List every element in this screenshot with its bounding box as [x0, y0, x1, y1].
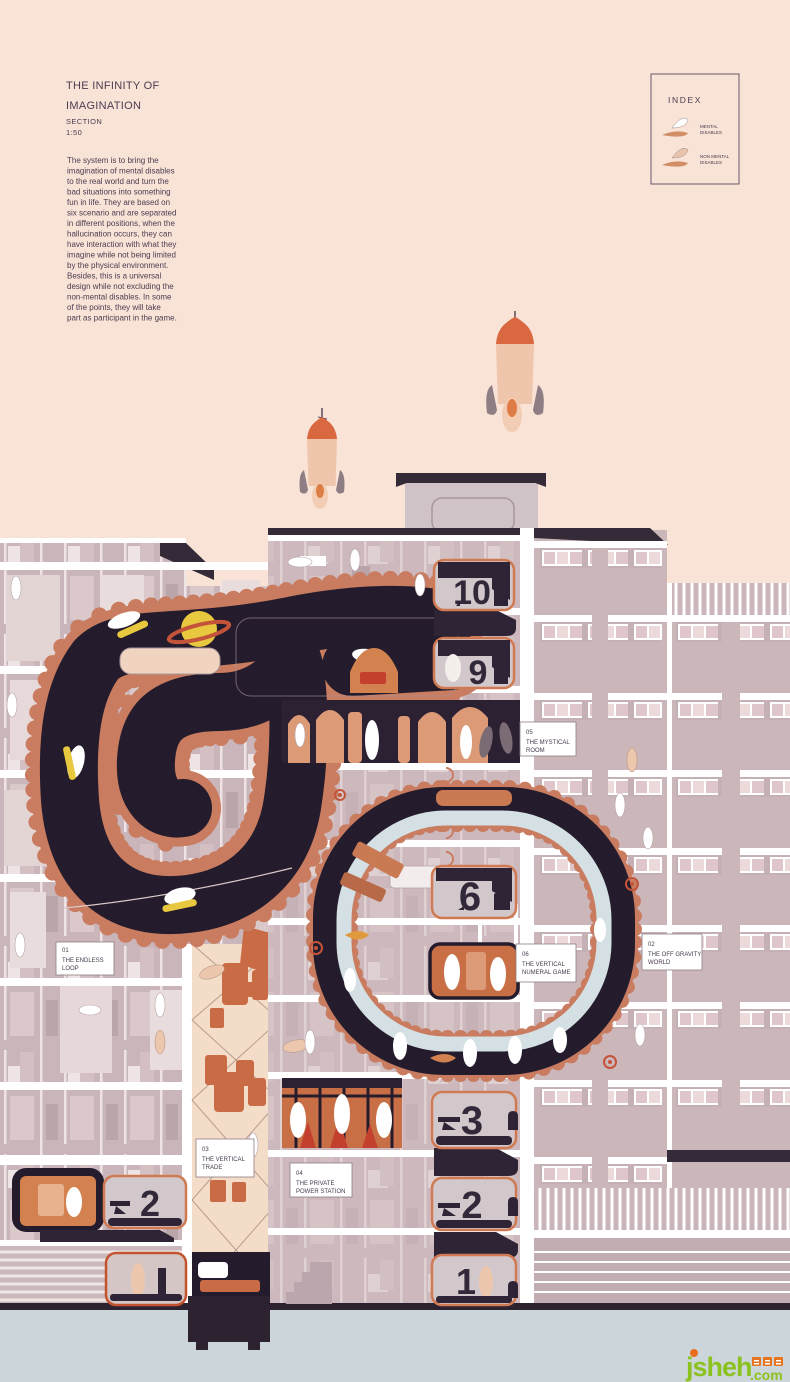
svg-text:in different positions, when t: in different positions, when the: [67, 219, 175, 228]
svg-text:MENTAL: MENTAL: [700, 124, 718, 129]
svg-text:have interaction with what the: have interaction with what they: [67, 240, 176, 249]
svg-text:1:50: 1:50: [66, 128, 82, 137]
svg-text:THE MYSTICAL: THE MYSTICAL: [526, 740, 570, 746]
svg-text:NUMERAL GAME: NUMERAL GAME: [522, 970, 570, 976]
svg-text:04: 04: [296, 1171, 303, 1177]
svg-text:2: 2: [140, 1183, 160, 1224]
svg-text:INDEX: INDEX: [668, 95, 702, 105]
svg-text:10: 10: [453, 574, 491, 612]
svg-text:IMAGINATION: IMAGINATION: [66, 100, 141, 112]
svg-text:fun in life. They are based on: fun in life. They are based on: [67, 198, 170, 207]
svg-text:TRADE: TRADE: [202, 1165, 222, 1171]
svg-text:Besides, this is a universal: Besides, this is a universal: [67, 272, 161, 281]
svg-text:The system is to bring the: The system is to bring the: [67, 156, 159, 165]
svg-text:THE VERTICAL: THE VERTICAL: [522, 962, 566, 968]
svg-text:LOOP: LOOP: [62, 966, 79, 972]
svg-text:.com: .com: [750, 1367, 783, 1382]
svg-text:6: 6: [459, 875, 481, 919]
svg-text:THE PRIVATE: THE PRIVATE: [296, 1181, 334, 1187]
svg-text:hallucination occurs, they can: hallucination occurs, they can: [67, 230, 172, 239]
svg-text:by the physical environment.: by the physical environment.: [67, 261, 168, 270]
svg-text:02: 02: [648, 942, 655, 948]
svg-text:03: 03: [202, 1147, 209, 1153]
svg-text:THE VERTICAL: THE VERTICAL: [202, 1157, 246, 1163]
svg-text:bad situations into something: bad situations into something: [67, 188, 171, 197]
svg-text:06: 06: [522, 952, 529, 958]
svg-text:non-mental disables. In some: non-mental disables. In some: [67, 293, 172, 302]
svg-text:1: 1: [456, 1261, 476, 1302]
svg-text:WORLD: WORLD: [648, 960, 671, 966]
svg-text:design while not excluding the: design while not excluding the: [67, 282, 174, 291]
svg-text:ROOM: ROOM: [526, 748, 545, 754]
svg-text:imagination of mental disables: imagination of mental disables: [67, 167, 175, 176]
svg-text:part as participant in the gam: part as participant in the game.: [67, 314, 177, 323]
svg-text:DISABLES: DISABLES: [700, 130, 722, 135]
svg-text:of the points, they will take: of the points, they will take: [67, 303, 161, 312]
svg-text:05: 05: [526, 730, 533, 736]
svg-text:POWER STATION: POWER STATION: [296, 1189, 345, 1195]
svg-text:six scenario and are separated: six scenario and are separated: [67, 209, 176, 218]
svg-text:imagine while not being limite: imagine while not being limited: [67, 251, 176, 260]
svg-text:DISABLES: DISABLES: [700, 160, 722, 165]
svg-text:9: 9: [469, 654, 488, 692]
svg-text:SECTION: SECTION: [66, 117, 102, 126]
svg-text:THE ENDLESS: THE ENDLESS: [62, 958, 104, 964]
svg-text:THE INFINITY OF: THE INFINITY OF: [66, 80, 160, 92]
svg-text:01: 01: [62, 948, 69, 954]
svg-text:THE OFF GRAVITY: THE OFF GRAVITY: [648, 952, 701, 958]
svg-text:to the real world and turn the: to the real world and turn the: [67, 177, 169, 186]
svg-text:NON MENTAL: NON MENTAL: [700, 154, 730, 159]
